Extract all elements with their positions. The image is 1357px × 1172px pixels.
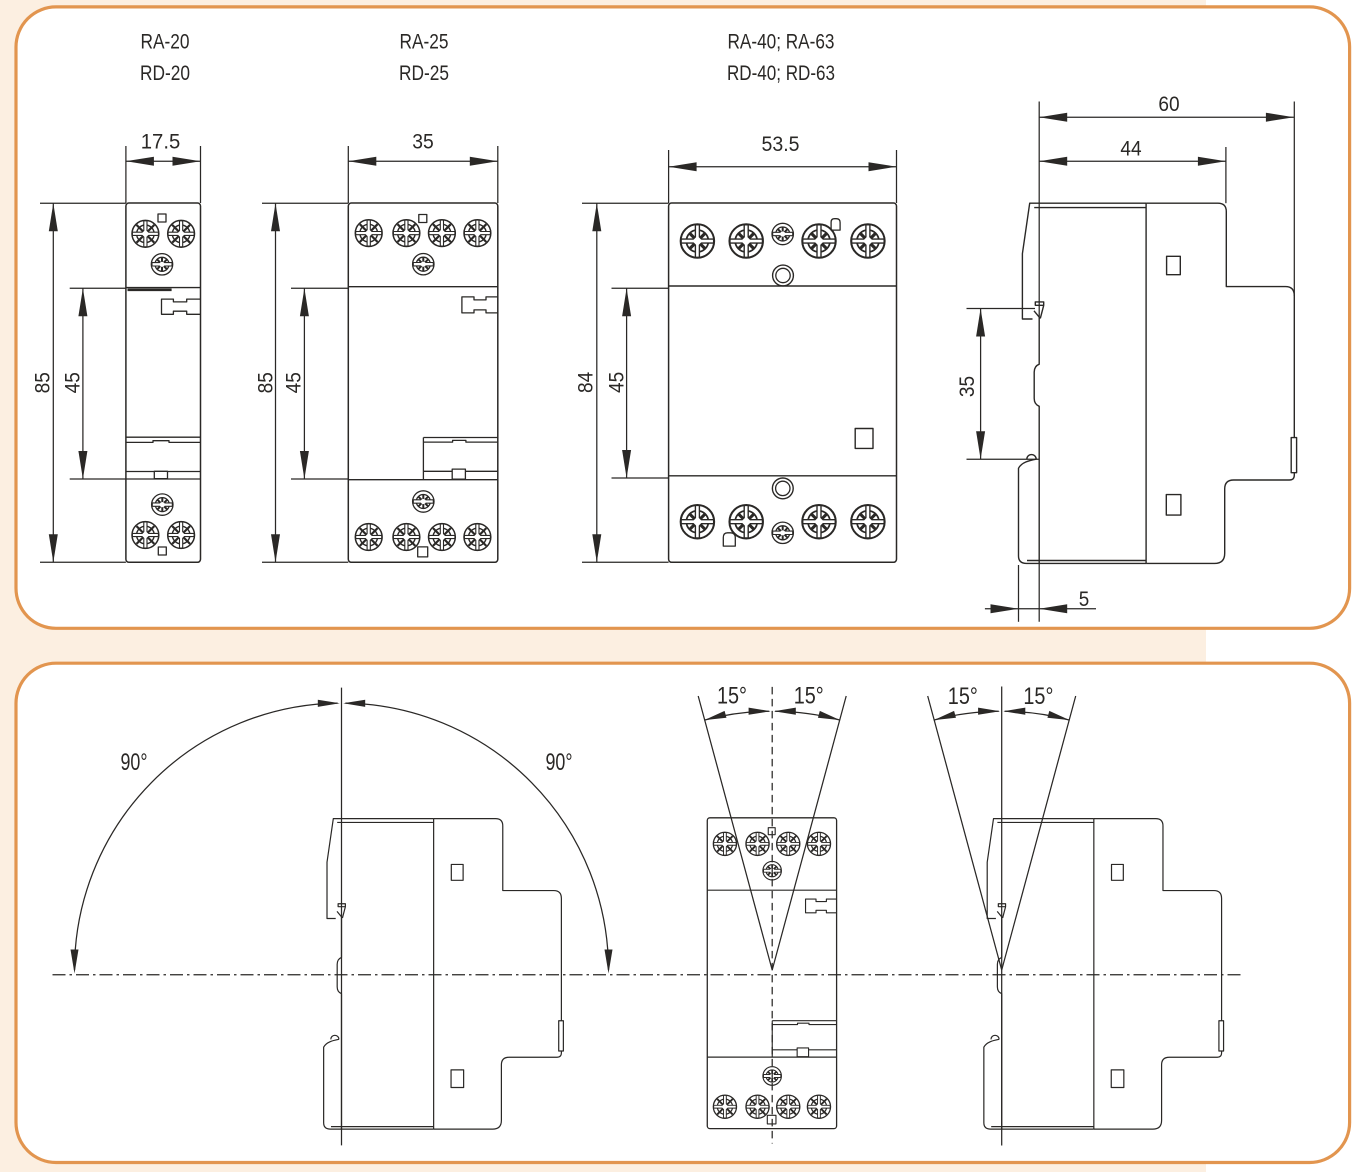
svg-text:85: 85 bbox=[32, 372, 55, 393]
svg-text:15°: 15° bbox=[794, 683, 824, 710]
svg-text:84: 84 bbox=[575, 372, 598, 393]
svg-text:45: 45 bbox=[606, 372, 629, 393]
svg-text:RA-40; RA-63: RA-40; RA-63 bbox=[728, 30, 835, 54]
svg-text:85: 85 bbox=[255, 372, 278, 393]
svg-text:15°: 15° bbox=[717, 683, 747, 710]
svg-text:45: 45 bbox=[282, 372, 305, 393]
svg-text:45: 45 bbox=[61, 372, 84, 393]
svg-text:90°: 90° bbox=[546, 749, 573, 776]
svg-text:15°: 15° bbox=[948, 683, 978, 710]
svg-text:35: 35 bbox=[956, 376, 979, 397]
svg-text:RD-20: RD-20 bbox=[140, 61, 190, 85]
svg-text:RA-25: RA-25 bbox=[400, 30, 449, 54]
svg-text:60: 60 bbox=[1158, 93, 1179, 116]
svg-text:5: 5 bbox=[1079, 588, 1090, 611]
svg-text:15°: 15° bbox=[1023, 683, 1053, 710]
svg-text:44: 44 bbox=[1120, 138, 1141, 161]
svg-text:90°: 90° bbox=[121, 749, 148, 776]
svg-text:RD-40; RD-63: RD-40; RD-63 bbox=[727, 61, 835, 85]
svg-text:RD-25: RD-25 bbox=[399, 61, 449, 85]
svg-text:35: 35 bbox=[412, 131, 434, 154]
svg-text:RA-20: RA-20 bbox=[141, 30, 190, 54]
svg-text:53.5: 53.5 bbox=[762, 133, 800, 156]
svg-text:17.5: 17.5 bbox=[141, 131, 181, 154]
